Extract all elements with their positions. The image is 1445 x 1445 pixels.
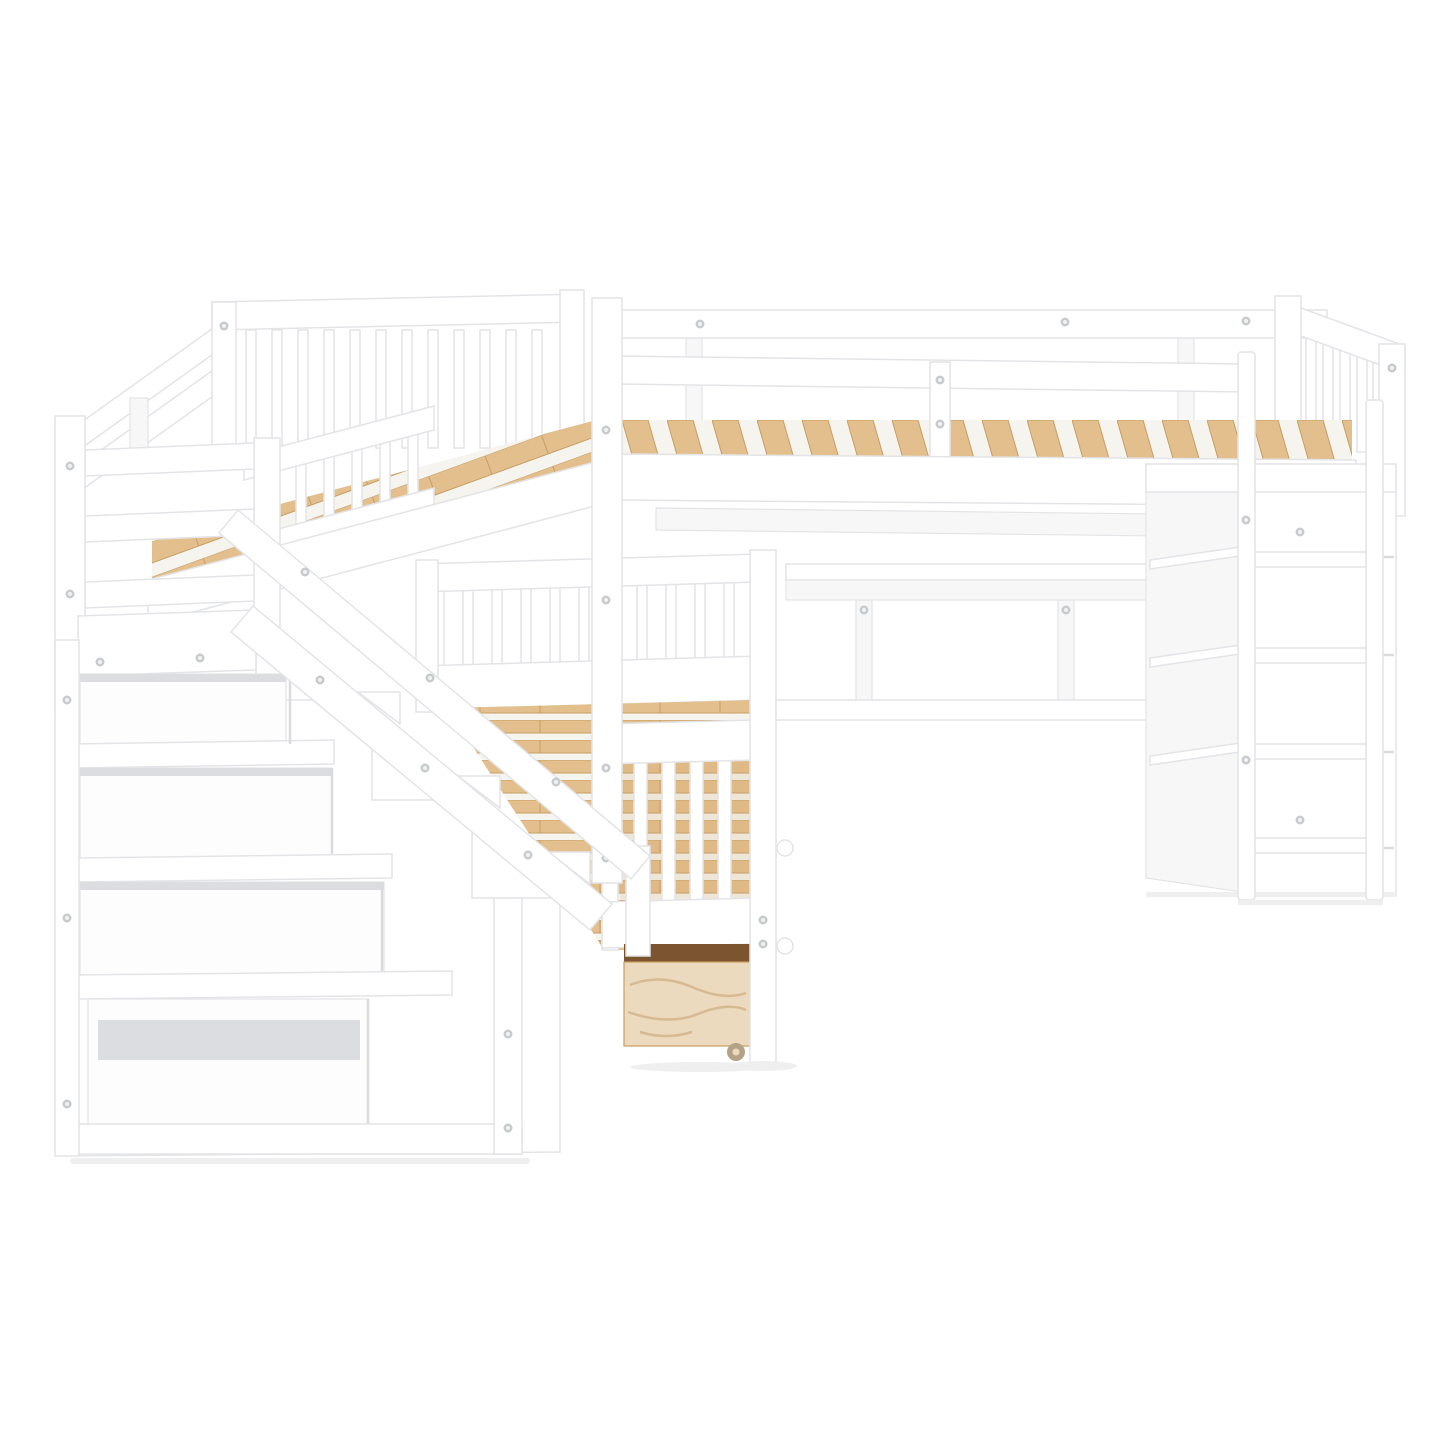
bed-post [750,550,776,1062]
desk [776,564,1162,720]
bottom-rail [74,1124,522,1154]
desk-leg [856,600,872,710]
stretcher-rail [776,700,1158,720]
desk-leg [1058,600,1074,706]
ladder-rung [1252,838,1368,853]
cabinet-top [1146,464,1396,492]
cabinet [1146,464,1396,897]
desk-top [786,564,1162,580]
side-rail [656,508,1158,536]
ladder-rail [1238,352,1255,900]
ladder-rail [1366,400,1383,900]
knob [777,938,793,954]
staircase-stile [55,640,79,1156]
knob [777,840,793,856]
corner-post-main [592,298,622,883]
storage-drawer [624,944,770,1072]
staircase-post [494,898,522,1154]
headboard-top-rail [212,294,582,330]
top-step-fascia [78,610,256,676]
floor-shadow [729,1061,797,1071]
product-image [0,0,1445,1445]
back-top-rail [612,310,1327,338]
shelf-board [74,854,392,882]
ladder-rung [1252,744,1368,759]
ladder-rung [1252,648,1368,663]
desk-edge [786,580,1162,600]
bunk-bed-scene [0,0,1445,1445]
lower-headboard [416,554,758,712]
shelf-board [74,740,334,768]
shelf-board [74,971,452,999]
ladder-rung [1252,552,1368,567]
